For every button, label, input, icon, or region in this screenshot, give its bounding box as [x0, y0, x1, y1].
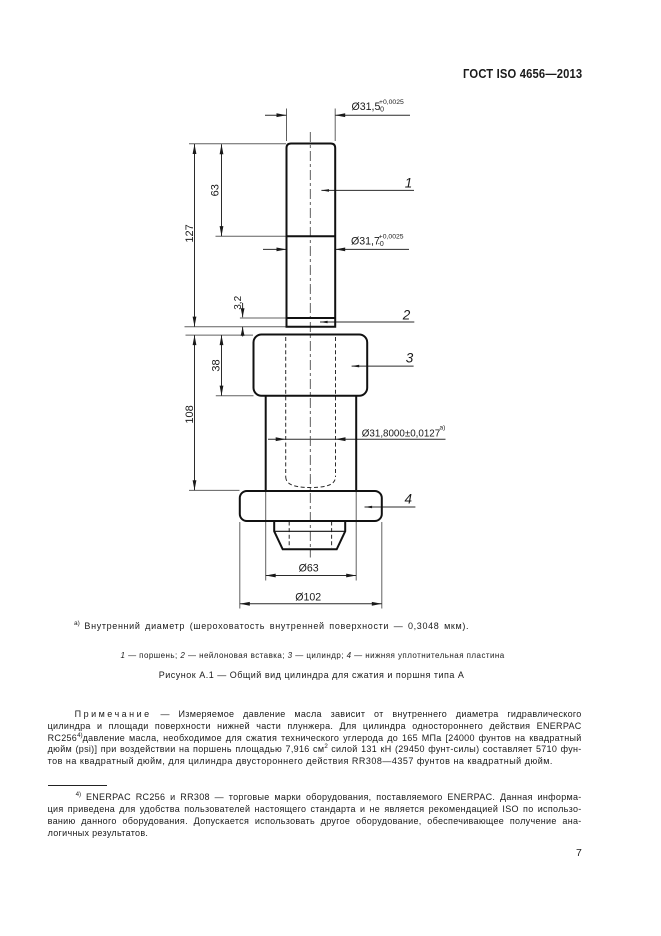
svg-text:3: 3 — [406, 350, 414, 365]
svg-text:+0,0025: +0,0025 — [379, 233, 404, 240]
svg-text:Ø31,7: Ø31,7 — [351, 236, 380, 248]
svg-text:Ø63: Ø63 — [299, 562, 319, 574]
svg-text:3,2: 3,2 — [233, 295, 244, 309]
svg-text:-0: -0 — [378, 241, 384, 248]
svg-text:63: 63 — [209, 184, 221, 196]
svg-text:38: 38 — [210, 359, 222, 371]
svg-text:а): а) — [440, 425, 446, 432]
svg-text:1: 1 — [405, 175, 413, 190]
svg-text:4: 4 — [405, 492, 413, 507]
svg-text:108: 108 — [184, 405, 196, 423]
svg-text:Ø102: Ø102 — [295, 591, 321, 603]
svg-text:-0: -0 — [378, 107, 384, 114]
svg-text:2: 2 — [402, 308, 411, 323]
svg-text:+0,0025: +0,0025 — [379, 99, 404, 106]
svg-text:127: 127 — [184, 224, 196, 242]
svg-text:Ø31,5: Ø31,5 — [352, 101, 381, 113]
svg-text:Ø31,8000±0,0127: Ø31,8000±0,0127 — [362, 429, 440, 440]
